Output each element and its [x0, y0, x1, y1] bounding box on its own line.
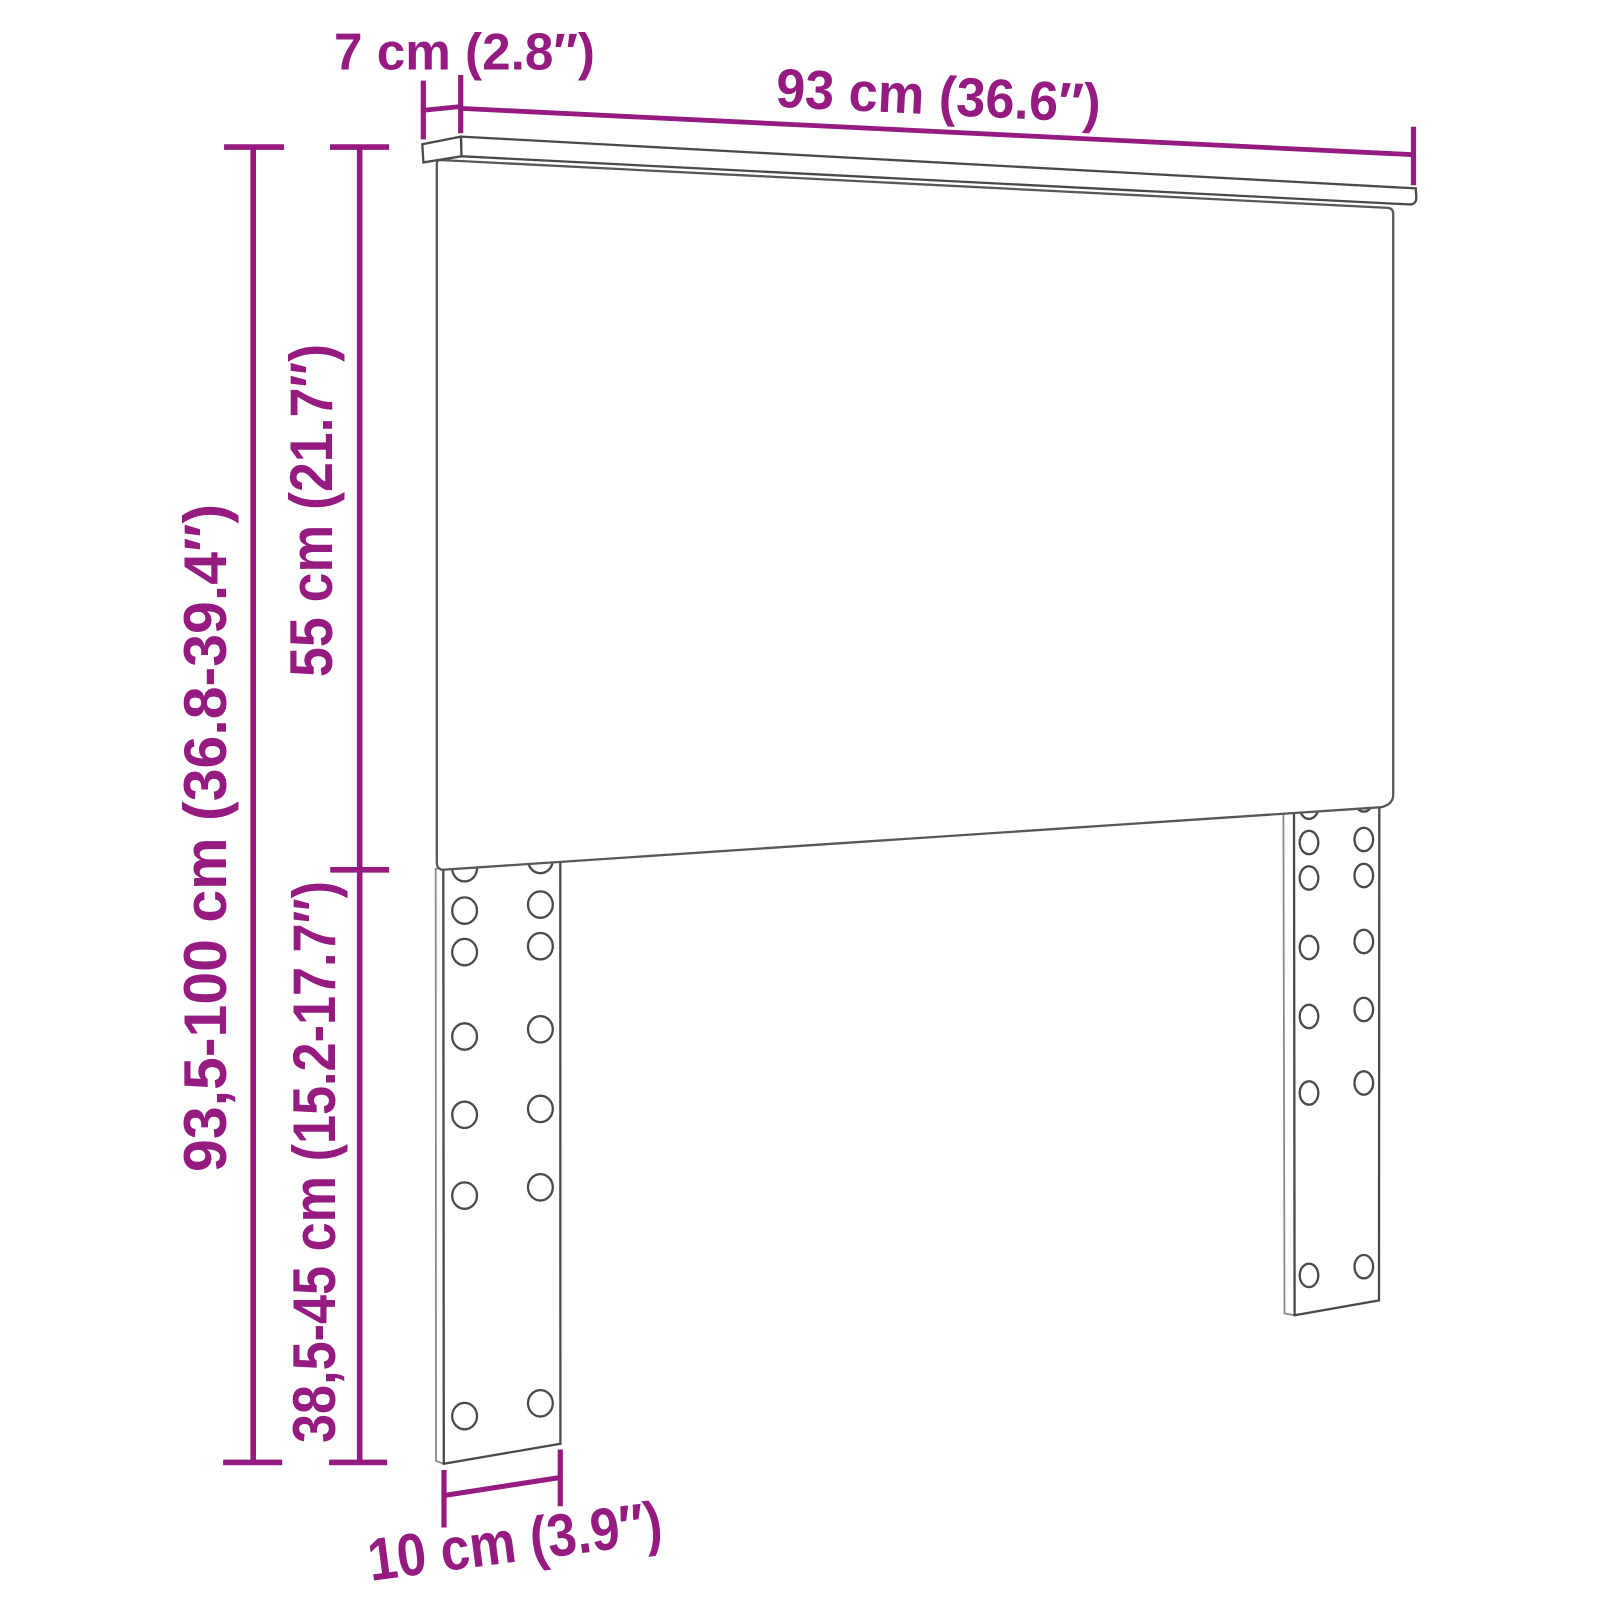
- svg-text:55 cm (21.7″): 55 cm (21.7″): [278, 344, 345, 677]
- svg-text:38,5-45 cm (15.2-17.7″): 38,5-45 cm (15.2-17.7″): [281, 881, 348, 1443]
- svg-text:7 cm (2.8″): 7 cm (2.8″): [334, 24, 595, 82]
- svg-text:93,5-100 cm (36.8-39.4″): 93,5-100 cm (36.8-39.4″): [172, 504, 239, 1172]
